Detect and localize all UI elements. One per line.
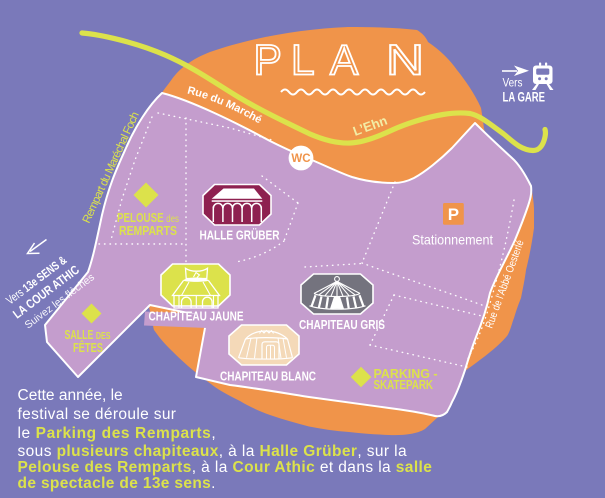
svg-text:HALLE GRÜBER: HALLE GRÜBER [200, 228, 280, 243]
svg-text:SKATEPARK: SKATEPARK [374, 378, 434, 392]
svg-text:CHAPITEAU GRIS: CHAPITEAU GRIS [299, 317, 385, 332]
svg-text:FÊTES: FÊTES [73, 340, 103, 355]
svg-text:REMPARTS: REMPARTS [119, 223, 177, 238]
svg-text:LA GARE: LA GARE [503, 90, 546, 105]
svg-text:Vers: Vers [503, 78, 523, 90]
svg-text:CHAPITEAU JAUNE: CHAPITEAU JAUNE [149, 309, 244, 324]
svg-text:Stationnement: Stationnement [412, 232, 493, 248]
svg-text:WC: WC [291, 153, 310, 165]
svg-text:P: P [448, 205, 459, 224]
svg-text:CHAPITEAU BLANC: CHAPITEAU BLANC [220, 369, 316, 384]
svg-text:PLAN: PLAN [254, 38, 425, 85]
